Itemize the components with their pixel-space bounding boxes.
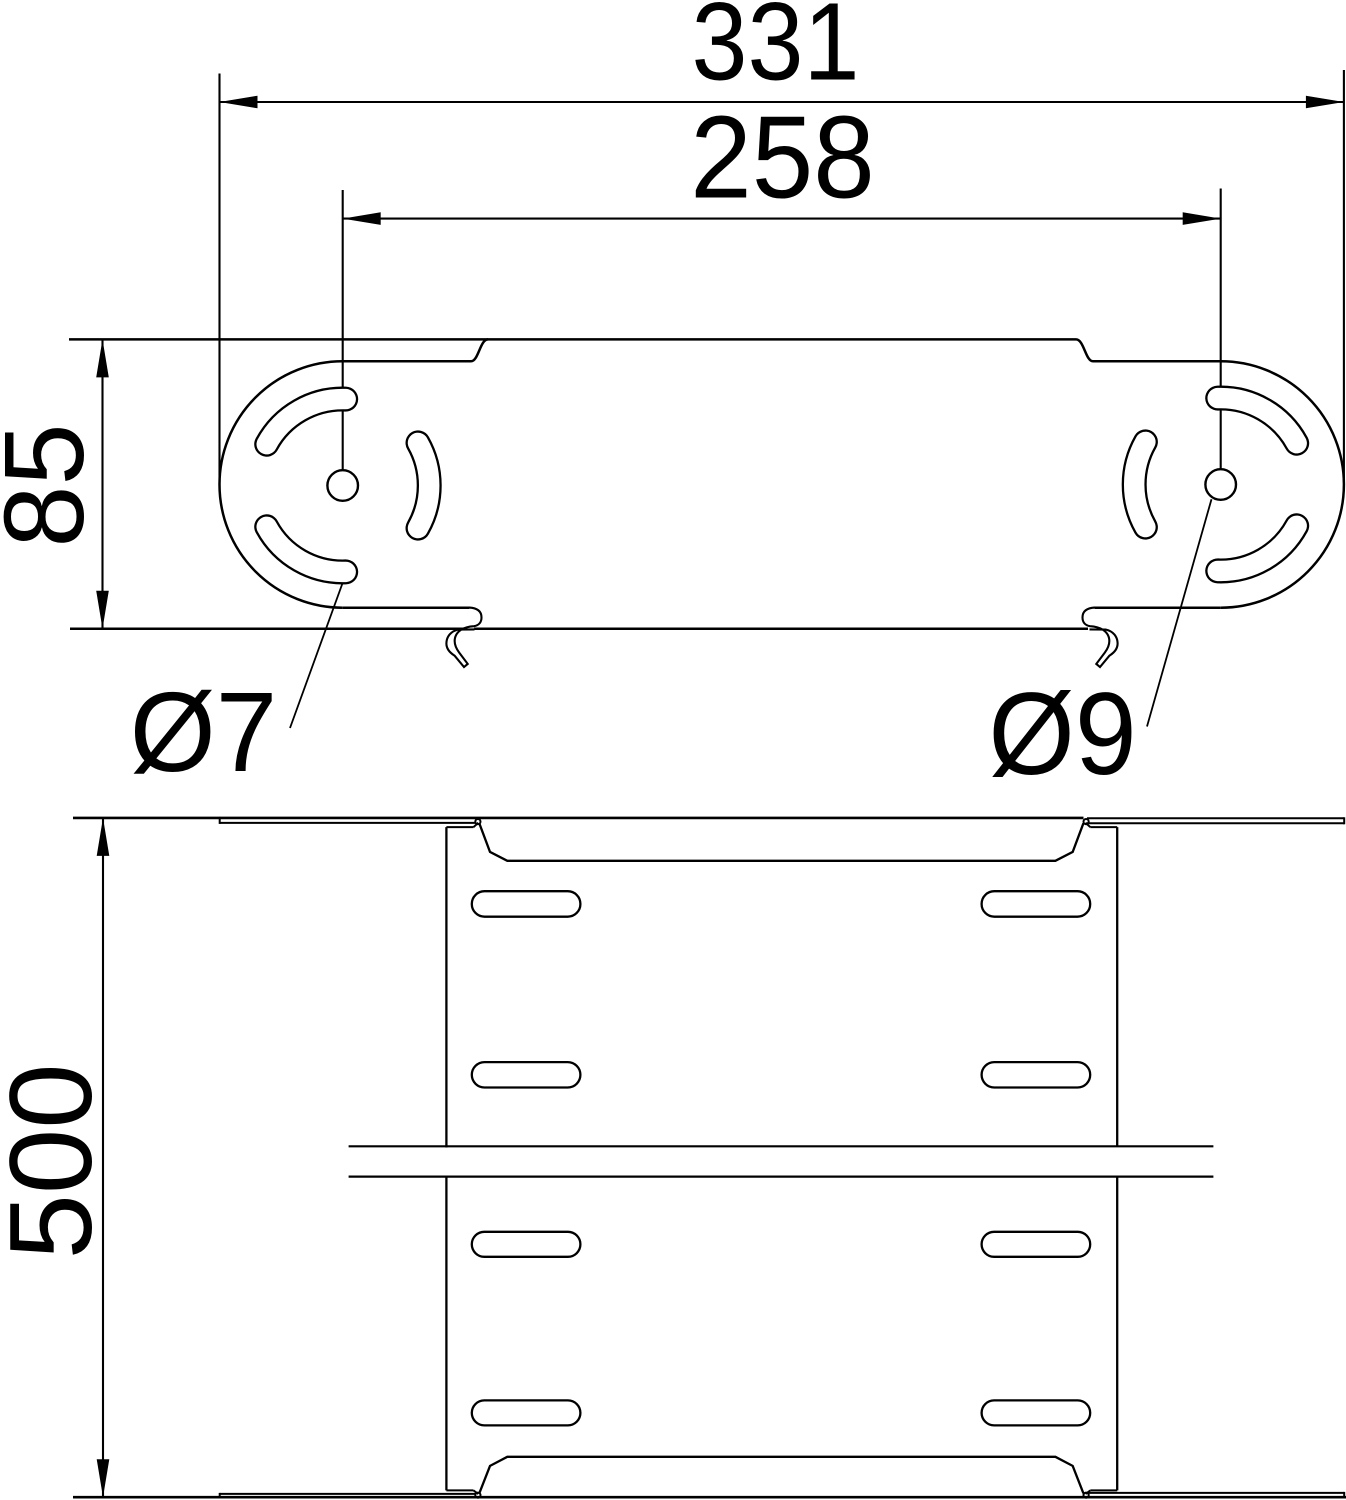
svg-text:500: 500 <box>0 1063 116 1259</box>
svg-text:Ø9: Ø9 <box>988 669 1136 799</box>
svg-text:Ø7: Ø7 <box>130 669 277 795</box>
svg-text:85: 85 <box>0 423 107 547</box>
svg-text:331: 331 <box>692 0 860 104</box>
svg-text:258: 258 <box>690 93 874 224</box>
